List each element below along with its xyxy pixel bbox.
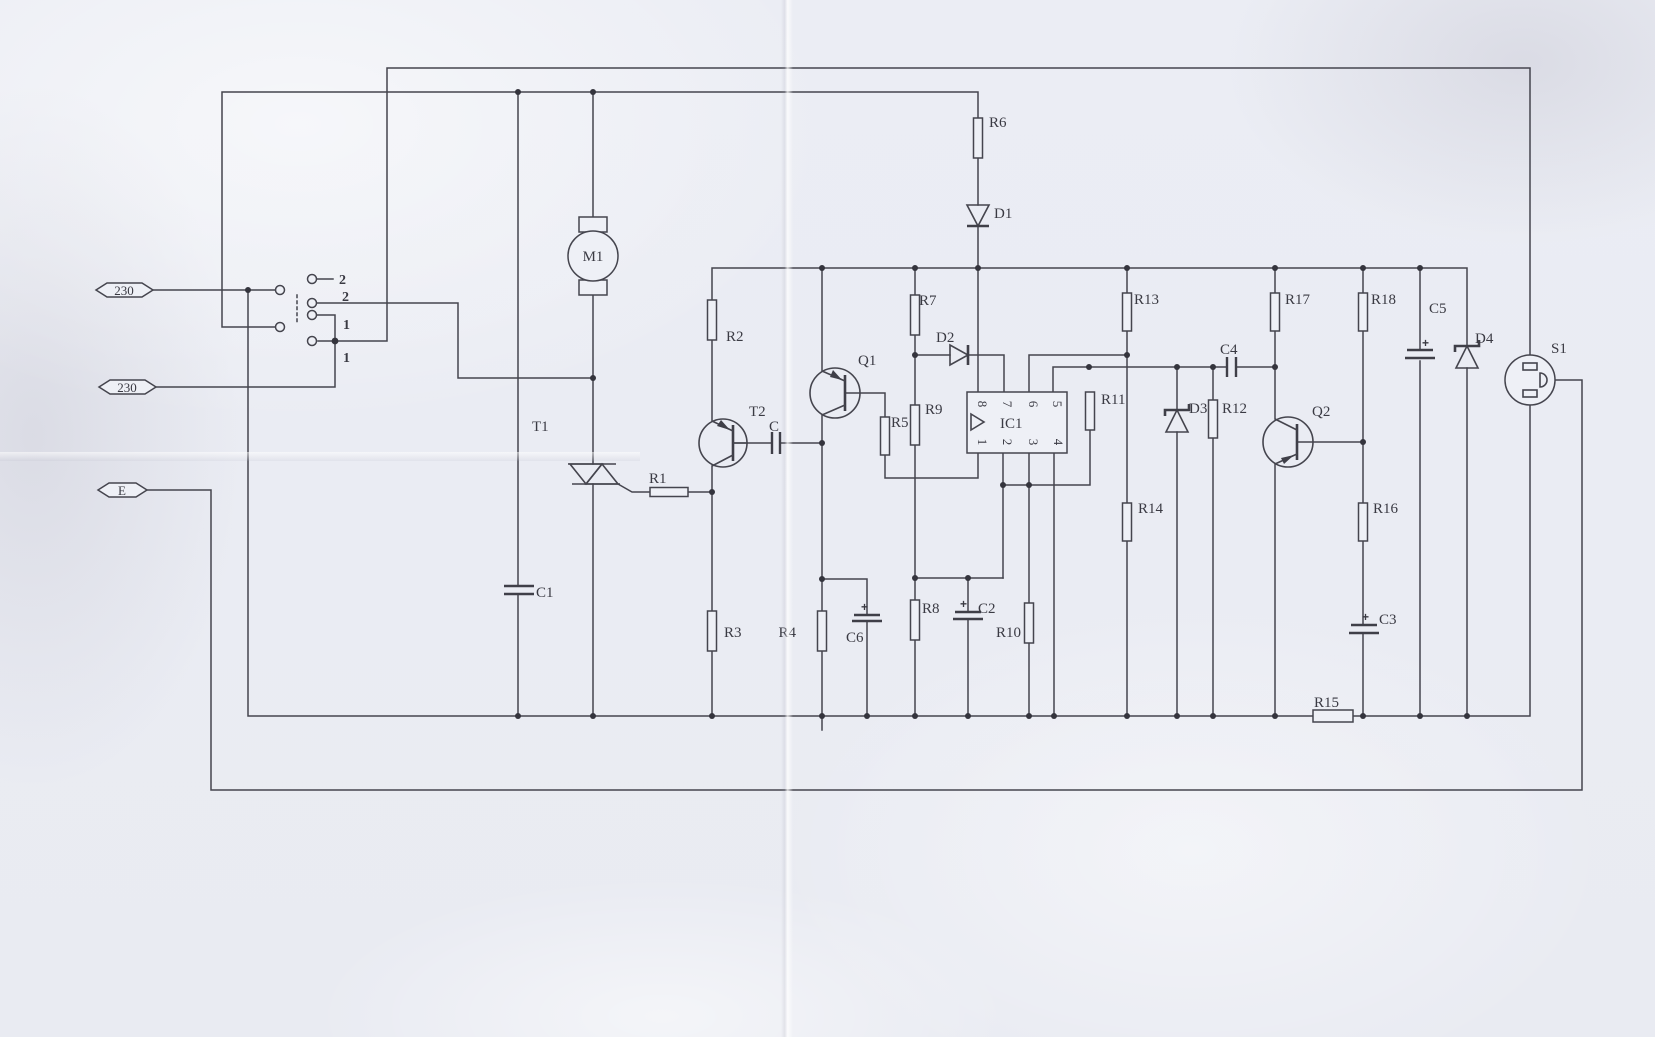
junction-dot [965, 713, 971, 719]
resistor-r1 [650, 488, 688, 497]
resistor-r12 [1209, 400, 1218, 438]
terminal-live-label: 230 [114, 283, 134, 298]
label-r10: R10 [996, 625, 1021, 641]
circuit-diagram: 230 230 E 2 2 1 1 M1 T1 [0, 0, 1655, 1037]
transistor-leads [712, 421, 748, 466]
junction-dot [1272, 265, 1278, 271]
label-t2: T2 [749, 404, 766, 420]
wire [712, 268, 1467, 346]
diode-d3 [1166, 410, 1188, 432]
switch-contact [308, 275, 317, 284]
junction-dot [819, 440, 825, 446]
label-m1: M1 [583, 249, 604, 265]
transistor-arrow [830, 370, 842, 380]
label-r8: R8 [922, 601, 940, 617]
label-r14: R14 [1138, 501, 1164, 517]
switch-pos-label: 1 [343, 318, 350, 333]
label-c1: C1 [536, 585, 554, 601]
junction-dot [1174, 713, 1180, 719]
junction-dot [1124, 352, 1130, 358]
junction-dot [515, 713, 521, 719]
resistor-r8 [911, 600, 920, 640]
resistor-r10 [1025, 603, 1034, 643]
label-c3: C3 [1379, 612, 1397, 628]
junction-dot [912, 713, 918, 719]
junction-dot [590, 89, 596, 95]
switch-pos-label: 1 [343, 351, 350, 366]
junction-dot [1174, 364, 1180, 370]
junction-dot [590, 375, 596, 381]
junction-dot [912, 575, 918, 581]
label-c6: C6 [846, 630, 864, 646]
capacitor-c6 [852, 615, 882, 621]
junction-dot [1026, 482, 1032, 488]
resistor-r3 [708, 611, 717, 651]
resistor-r4 [818, 611, 827, 651]
junction-dot [1086, 364, 1092, 370]
wire [147, 380, 1582, 790]
motor-brush [579, 217, 607, 232]
polarity-plus: + [861, 600, 868, 614]
label-r12: R12 [1222, 401, 1247, 417]
ic1-pin-5: 5 [1050, 401, 1065, 408]
transistor-arrow [717, 420, 730, 430]
junction-dot [1417, 265, 1423, 271]
junction-dot [709, 713, 715, 719]
triac-symbol [586, 464, 618, 484]
wire [915, 578, 1003, 716]
junction-dot [332, 338, 339, 345]
ic1-pin-8: 8 [975, 401, 990, 408]
switch-contact [276, 323, 285, 332]
capacitors: C C1 + C2 + C3 C4 + C5 + C6 [504, 301, 1447, 646]
label-c5: C5 [1429, 301, 1447, 317]
resistor-r14 [1123, 503, 1132, 541]
polarity-plus: + [1362, 610, 1369, 624]
junction-dot [1051, 713, 1057, 719]
label-r9: R9 [925, 402, 943, 418]
junction-dot [1272, 713, 1278, 719]
junction-dot [1417, 713, 1423, 719]
junction-dot [1000, 482, 1006, 488]
junction-dot [1360, 713, 1366, 719]
junction-dot [975, 265, 981, 271]
label-r1: R1 [649, 471, 667, 487]
label-r11: R11 [1101, 392, 1125, 408]
capacitor-c5 [1405, 350, 1435, 358]
switch-contact [308, 299, 317, 308]
label-c: C [769, 419, 779, 435]
ic1-pin-1: 1 [975, 439, 990, 446]
terminal-earth-label: E [118, 483, 126, 498]
label-q2: Q2 [1312, 404, 1330, 420]
wire-network [147, 68, 1582, 790]
label-q1: Q1 [858, 353, 876, 369]
wire [1353, 405, 1530, 716]
label-r15: R15 [1314, 695, 1339, 711]
ic1: IC1 8 7 6 5 1 2 3 4 [967, 392, 1067, 453]
motor-m1: M1 [568, 217, 618, 295]
diode-d1 [967, 205, 989, 226]
resistor-r16 [1359, 503, 1368, 541]
junction-dot [819, 576, 825, 582]
switch-pos-label: 2 [339, 273, 346, 288]
label-c2: C2 [978, 601, 996, 617]
transistor-q1: Q1 [810, 353, 876, 418]
label-r13: R13 [1134, 292, 1159, 308]
resistor-r2 [708, 300, 717, 340]
motor-brush [579, 280, 607, 295]
ic1-pin-4: 4 [1051, 439, 1066, 446]
triac-symbol [570, 464, 602, 484]
wire [156, 341, 335, 387]
transistor-q2: Q2 [1263, 404, 1330, 467]
junction-dot [912, 352, 918, 358]
label-r4: R4 [778, 625, 796, 641]
label-d3: D3 [1189, 401, 1207, 417]
junction-dot [819, 265, 825, 271]
terminal-live: 230 [96, 283, 153, 298]
polarity-plus: + [960, 597, 967, 611]
junction-dot [965, 575, 971, 581]
label-r17: R17 [1285, 292, 1311, 308]
junction-dot [1026, 713, 1032, 719]
wire [318, 68, 1530, 355]
label-r6: R6 [989, 115, 1007, 131]
triac-t1: T1 [532, 419, 620, 484]
label-r16: R16 [1373, 501, 1399, 517]
label-r18: R18 [1371, 292, 1396, 308]
capacitor-c [772, 432, 780, 454]
switch-contact [308, 337, 317, 346]
ic1-pin-2: 2 [1000, 439, 1015, 446]
label-ic1: IC1 [1000, 416, 1023, 432]
schematic-paper: 230 230 E 2 2 1 1 M1 T1 [0, 0, 1655, 1037]
junction-dot [1124, 713, 1130, 719]
label-c4: C4 [1220, 342, 1238, 358]
junction-dot [1210, 713, 1216, 719]
diode-d2 [950, 345, 968, 365]
ic1-pin-3: 3 [1026, 439, 1041, 446]
resistor-r17 [1271, 293, 1280, 331]
junction-dot [1124, 265, 1130, 271]
capacitor-c3 [1349, 625, 1379, 633]
junction-dot [590, 713, 596, 719]
junction-dot [1210, 364, 1216, 370]
label-s1: S1 [1551, 341, 1567, 357]
diode-d4 [1456, 346, 1478, 368]
transistor-arrow [1281, 455, 1294, 464]
label-d1: D1 [994, 206, 1012, 222]
resistor-r13 [1123, 293, 1132, 331]
switch-pos-label: 2 [342, 290, 349, 305]
switch-contact [308, 311, 317, 320]
ic1-pin-6: 6 [1026, 401, 1041, 408]
junction-dot [1272, 364, 1278, 370]
resistor-r5 [881, 417, 890, 455]
wire [1053, 367, 1227, 392]
capacitor-c1 [504, 586, 534, 594]
connector-s1: S1 [1505, 341, 1567, 405]
selector-switch: 2 2 1 1 [276, 273, 351, 366]
resistor-r15 [1313, 710, 1353, 722]
junction-dot [864, 713, 870, 719]
label-t1: T1 [532, 419, 549, 435]
label-r5: R5 [891, 415, 909, 431]
label-r2: R2 [726, 329, 744, 345]
terminal-earth: E [98, 483, 147, 498]
junction-dot [1360, 439, 1366, 445]
junction-dot [245, 287, 251, 293]
polarity-plus: + [1422, 336, 1429, 350]
junction-dot [709, 489, 715, 495]
capacitor-c4 [1227, 357, 1236, 377]
junction-dot [912, 265, 918, 271]
terminal-neutral: 230 [99, 380, 156, 395]
transistor-t2: T2 [699, 404, 766, 467]
ic1-pin-7: 7 [1000, 401, 1015, 408]
resistor-r18 [1359, 293, 1368, 331]
resistor-r11 [1086, 392, 1095, 430]
label-d4: D4 [1475, 331, 1494, 347]
label-r7: R7 [919, 293, 937, 309]
switch-contact [276, 286, 285, 295]
junction-dot [515, 89, 521, 95]
junction-dot [1464, 713, 1470, 719]
junction-dot [819, 713, 825, 719]
resistor-r6 [974, 118, 983, 158]
label-d2: D2 [936, 330, 954, 346]
label-r3: R3 [724, 625, 742, 641]
wire [1029, 355, 1127, 392]
resistor-r9 [911, 405, 920, 445]
junction-dot [1360, 265, 1366, 271]
wire [317, 315, 335, 341]
terminal-neutral-label: 230 [117, 380, 137, 395]
